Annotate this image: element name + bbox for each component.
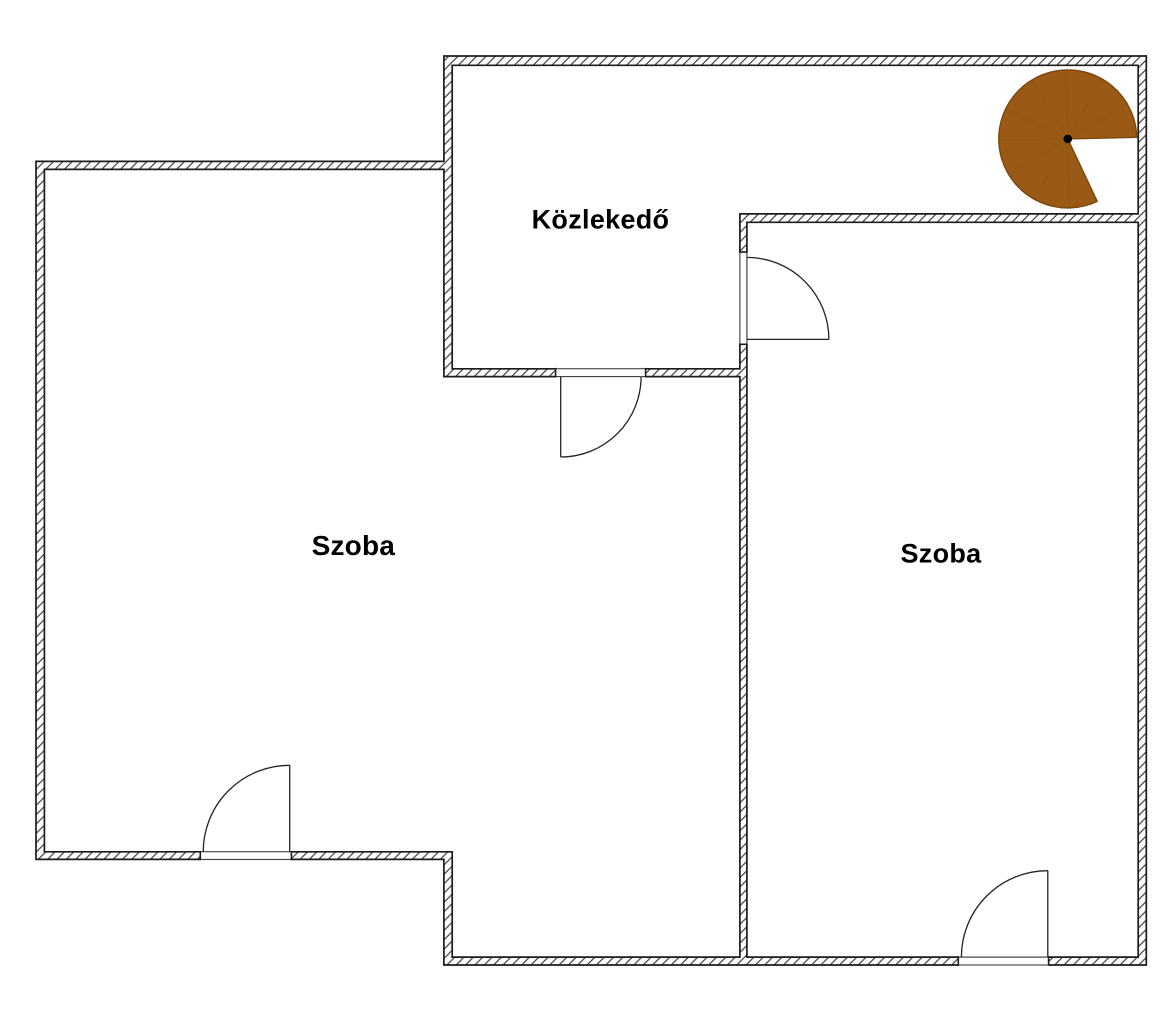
svg-text:Szoba: Szoba [312, 530, 396, 561]
svg-text:Szoba: Szoba [900, 538, 982, 568]
svg-text:Közlekedő: Közlekedő [532, 204, 670, 234]
